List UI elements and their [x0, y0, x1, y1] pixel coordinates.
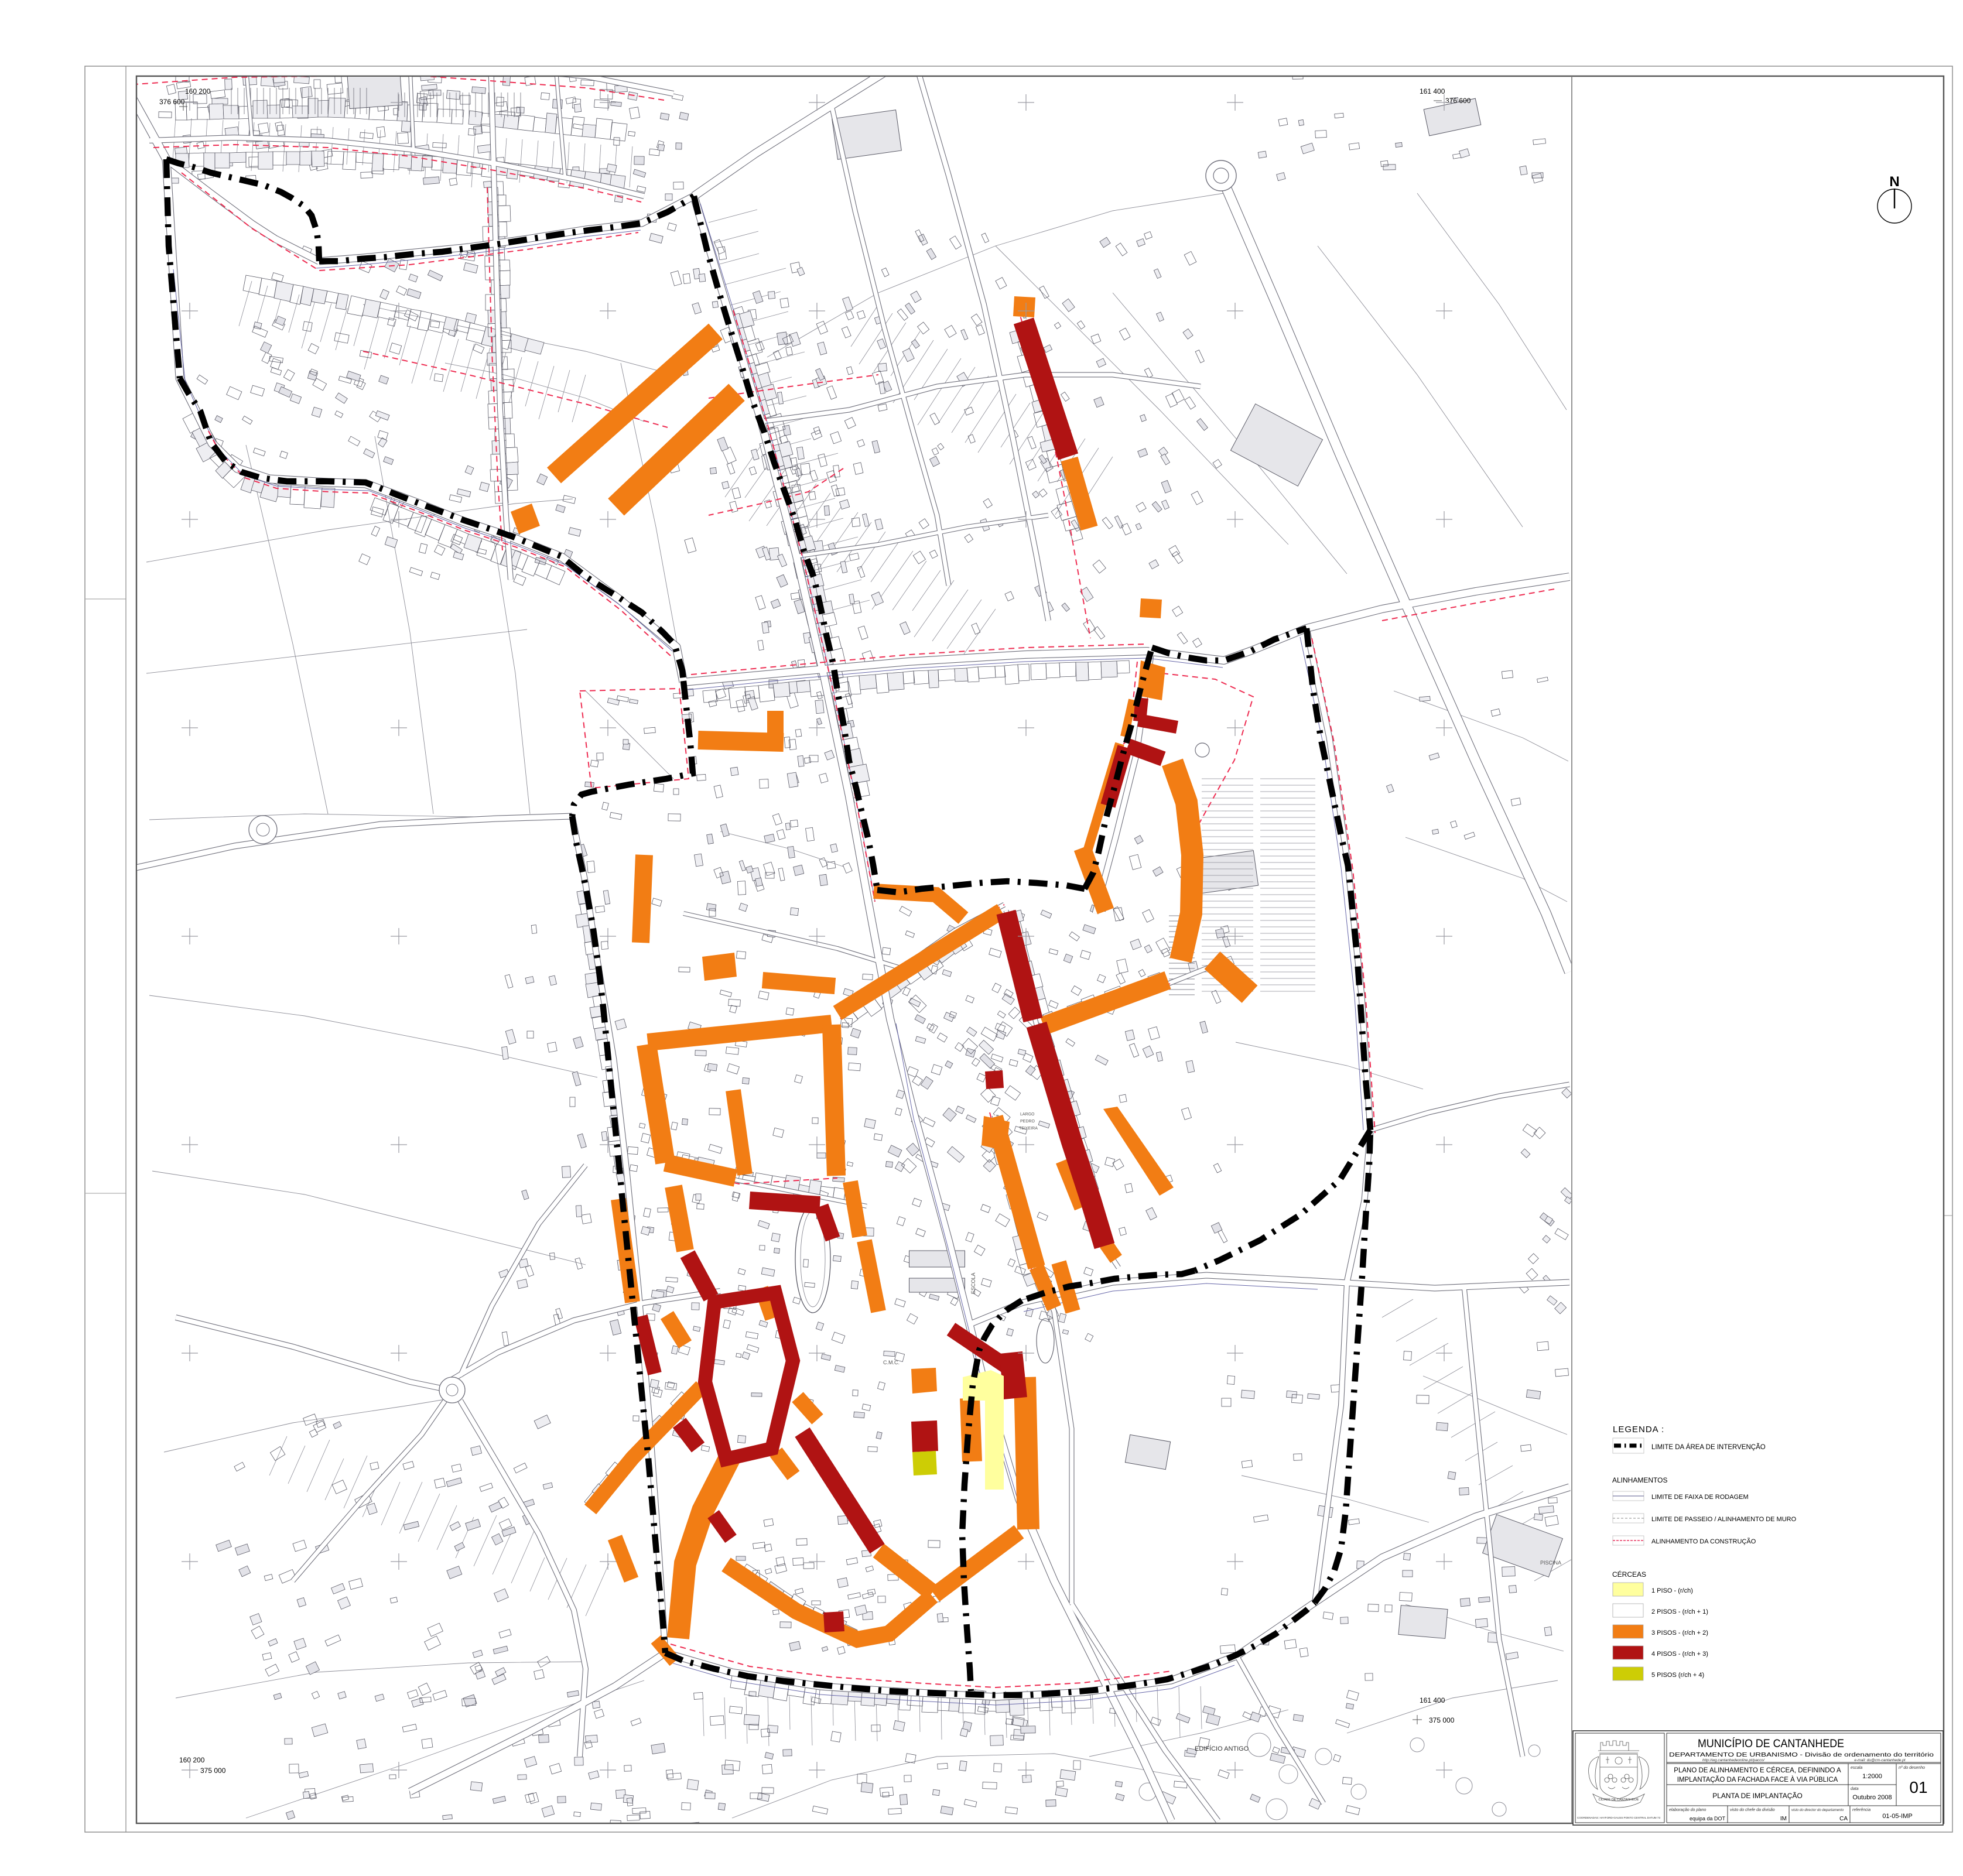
svg-text:C.M.C.: C.M.C.	[883, 1360, 900, 1365]
svg-text:375 000: 375 000	[1429, 1716, 1455, 1724]
svg-text:elaboração do plano: elaboração do plano	[1669, 1808, 1706, 1812]
svg-text:ALINHAMENTO DA CONSTRUÇÃO: ALINHAMENTO DA CONSTRUÇÃO	[1651, 1538, 1756, 1545]
svg-text:3 PISOS - (r/ch + 2): 3 PISOS - (r/ch + 2)	[1651, 1629, 1708, 1637]
svg-text:escala: escala	[1851, 1766, 1862, 1770]
svg-text:161 400: 161 400	[1420, 1696, 1445, 1704]
svg-text:01: 01	[1909, 1778, 1927, 1796]
svg-text:2 PISOS - (r/ch + 1): 2 PISOS - (r/ch + 1)	[1651, 1608, 1708, 1615]
svg-text:IMPLANTAÇÃO DA FACHADA FACE À: IMPLANTAÇÃO DA FACHADA FACE À VIA PÚBLIC…	[1677, 1776, 1838, 1783]
svg-text:376 600: 376 600	[159, 98, 185, 106]
svg-text:375 000: 375 000	[200, 1767, 226, 1775]
svg-text:LEGENDA :: LEGENDA :	[1613, 1425, 1664, 1435]
svg-text:http://wg.cantanhedeonline.pt/: http://wg.cantanhedeonline.pt/pacco/	[1702, 1758, 1765, 1762]
svg-text:160 200: 160 200	[185, 87, 211, 95]
svg-text:160 200: 160 200	[179, 1756, 205, 1764]
svg-text:N: N	[1889, 174, 1899, 190]
svg-text:nº do desenho: nº do desenho	[1899, 1766, 1925, 1770]
svg-text:ESCOLA: ESCOLA	[970, 1272, 976, 1294]
svg-text:COORDENADAS: HAYFORD-GAUSS PON: COORDENADAS: HAYFORD-GAUSS PONTO CENTRAL…	[1577, 1816, 1660, 1819]
svg-text:4 PISOS - (r/ch + 3): 4 PISOS - (r/ch + 3)	[1651, 1651, 1708, 1658]
svg-text:IM: IM	[1780, 1816, 1787, 1822]
svg-text:LIMITE DE PASSEIO / ALINHAMEN: LIMITE DE PASSEIO / ALINHAMENTO DE MURO	[1651, 1516, 1797, 1523]
svg-text:5 PISOS (r/ch + 4): 5 PISOS (r/ch + 4)	[1651, 1672, 1704, 1679]
svg-text:PLANO DE ALINHAMENTO E CÉRCEA,: PLANO DE ALINHAMENTO E CÉRCEA, DEFININDO…	[1674, 1767, 1841, 1774]
svg-text:ALINHAMENTOS: ALINHAMENTOS	[1612, 1476, 1667, 1484]
svg-text:LIMITE DA ÁREA DE INTERVENÇÃO: LIMITE DA ÁREA DE INTERVENÇÃO	[1651, 1443, 1766, 1451]
svg-text:Outubro 2008: Outubro 2008	[1852, 1794, 1892, 1801]
svg-text:MUNICÍPIO DE CANTANHEDE: MUNICÍPIO DE CANTANHEDE	[1698, 1738, 1844, 1750]
svg-text:CIDADE DE CANTANHEDE: CIDADE DE CANTANHEDE	[1599, 1798, 1639, 1802]
svg-text:LIMITE DE FAIXA DE RODAGEM: LIMITE DE FAIXA DE RODAGEM	[1651, 1494, 1749, 1501]
svg-text:1:2000: 1:2000	[1862, 1773, 1882, 1780]
svg-text:PEDRO: PEDRO	[1020, 1120, 1035, 1124]
svg-text:e-mail: du@cm-cantanhede.pt: e-mail: du@cm-cantanhede.pt	[1854, 1758, 1906, 1762]
svg-text:PISCINA: PISCINA	[1540, 1560, 1561, 1566]
svg-text:CA: CA	[1839, 1816, 1848, 1822]
svg-text:CÉRCEAS: CÉRCEAS	[1612, 1570, 1646, 1579]
svg-text:data: data	[1851, 1787, 1859, 1791]
svg-text:161 400: 161 400	[1420, 87, 1445, 95]
svg-text:referência: referência	[1852, 1808, 1870, 1812]
svg-text:DEPARTAMENTO DE URBANISMO - Di: DEPARTAMENTO DE URBANISMO - Divisão de o…	[1669, 1752, 1934, 1758]
svg-text:equipa da DOT: equipa da DOT	[1690, 1816, 1726, 1822]
svg-text:visto do chefe da divisão: visto do chefe da divisão	[1730, 1808, 1775, 1812]
svg-text:LARGO: LARGO	[1020, 1112, 1035, 1117]
svg-text:TEIXEIRA: TEIXEIRA	[1019, 1127, 1038, 1131]
svg-text:376 600: 376 600	[1445, 97, 1471, 105]
svg-text:PLANTA DE IMPLANTAÇÃO: PLANTA DE IMPLANTAÇÃO	[1712, 1792, 1803, 1800]
svg-text:visto do director do departame: visto do director do departamento	[1791, 1809, 1844, 1812]
svg-text:EDIFÍCIO ANTIGO: EDIFÍCIO ANTIGO	[1195, 1745, 1249, 1752]
svg-text:1 PISO - (r/ch): 1 PISO - (r/ch)	[1651, 1587, 1693, 1594]
svg-text:01-05-IMP: 01-05-IMP	[1882, 1813, 1912, 1820]
